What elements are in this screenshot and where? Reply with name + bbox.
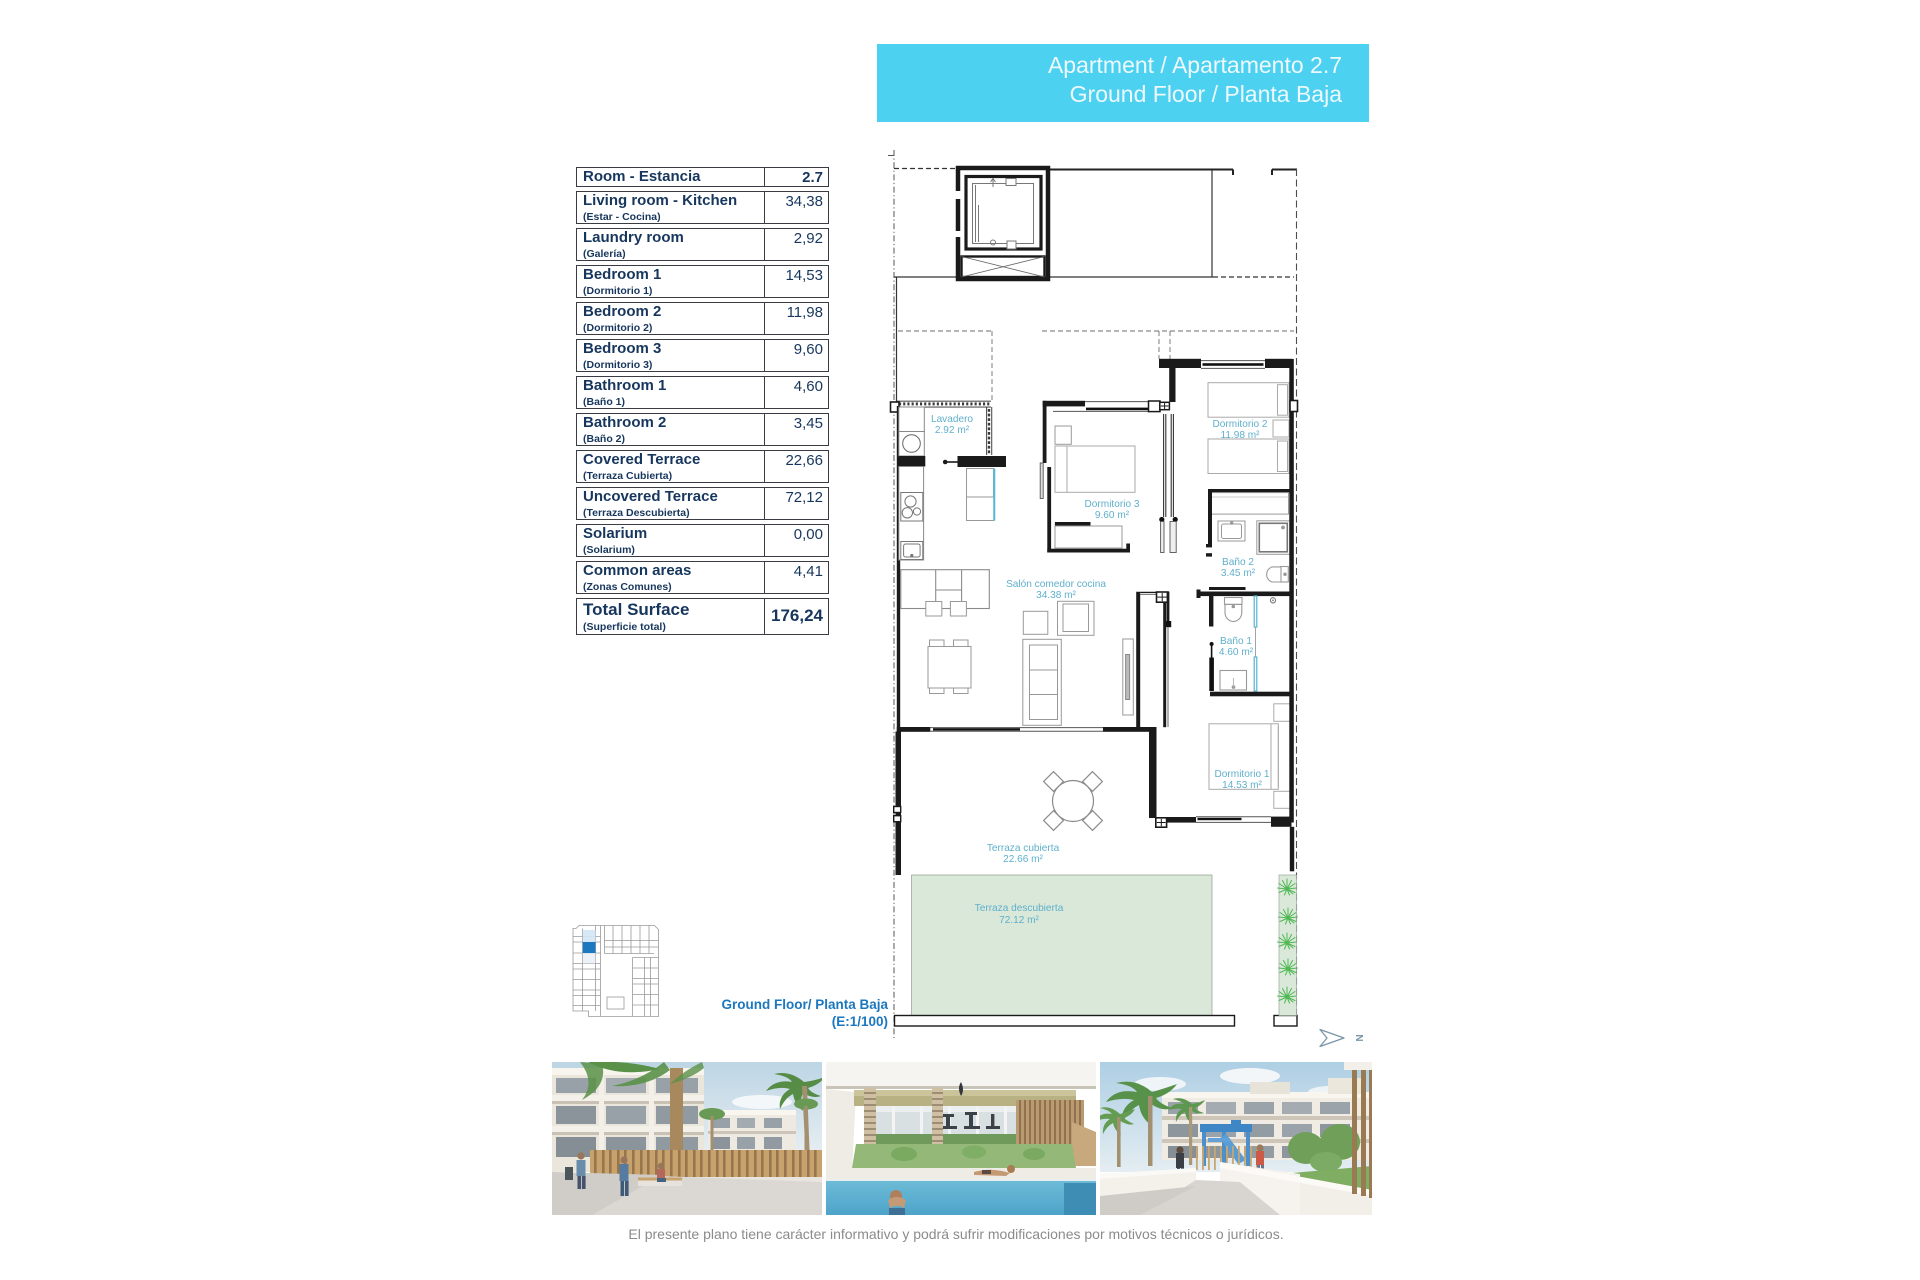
svg-text:2.92 m²: 2.92 m²	[935, 425, 970, 436]
svg-text:N: N	[1353, 1034, 1364, 1041]
svg-text:Dormitorio 2: Dormitorio 2	[1213, 419, 1268, 430]
svg-text:11.98 m²: 11.98 m²	[1220, 430, 1260, 441]
svg-text:22.66 m²: 22.66 m²	[1003, 854, 1043, 865]
svg-text:72.12 m²: 72.12 m²	[999, 915, 1039, 926]
svg-text:Lavadero: Lavadero	[931, 414, 973, 425]
svg-text:3.45 m²: 3.45 m²	[1221, 568, 1256, 579]
svg-text:Dormitorio 1: Dormitorio 1	[1215, 769, 1270, 780]
svg-text:9.60 m²: 9.60 m²	[1095, 510, 1130, 521]
svg-text:4.60 m²: 4.60 m²	[1219, 647, 1254, 658]
svg-text:14.53 m²: 14.53 m²	[1222, 780, 1262, 791]
svg-text:Baño 2: Baño 2	[1222, 557, 1254, 568]
svg-text:Dormitorio 3: Dormitorio 3	[1085, 499, 1140, 510]
svg-text:Salón comedor cocina: Salón comedor cocina	[1006, 579, 1106, 590]
svg-text:Terraza descubierta: Terraza descubierta	[975, 903, 1064, 914]
svg-text:Baño 1: Baño 1	[1220, 636, 1252, 647]
svg-text:Terraza cubierta: Terraza cubierta	[987, 843, 1060, 854]
svg-text:34.38 m²: 34.38 m²	[1036, 590, 1076, 601]
